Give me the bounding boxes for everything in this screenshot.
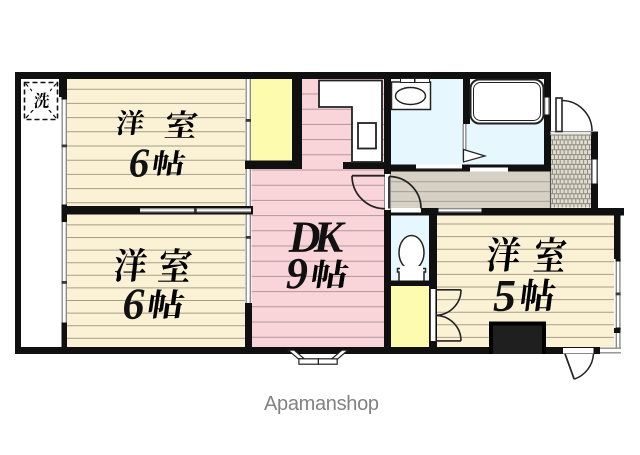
svg-text:5: 5 [493, 270, 516, 321]
svg-text:Apamanshop: Apamanshop [264, 393, 379, 415]
svg-text:DK: DK [288, 213, 346, 262]
svg-text:6: 6 [123, 280, 145, 329]
svg-text:6: 6 [129, 139, 150, 185]
